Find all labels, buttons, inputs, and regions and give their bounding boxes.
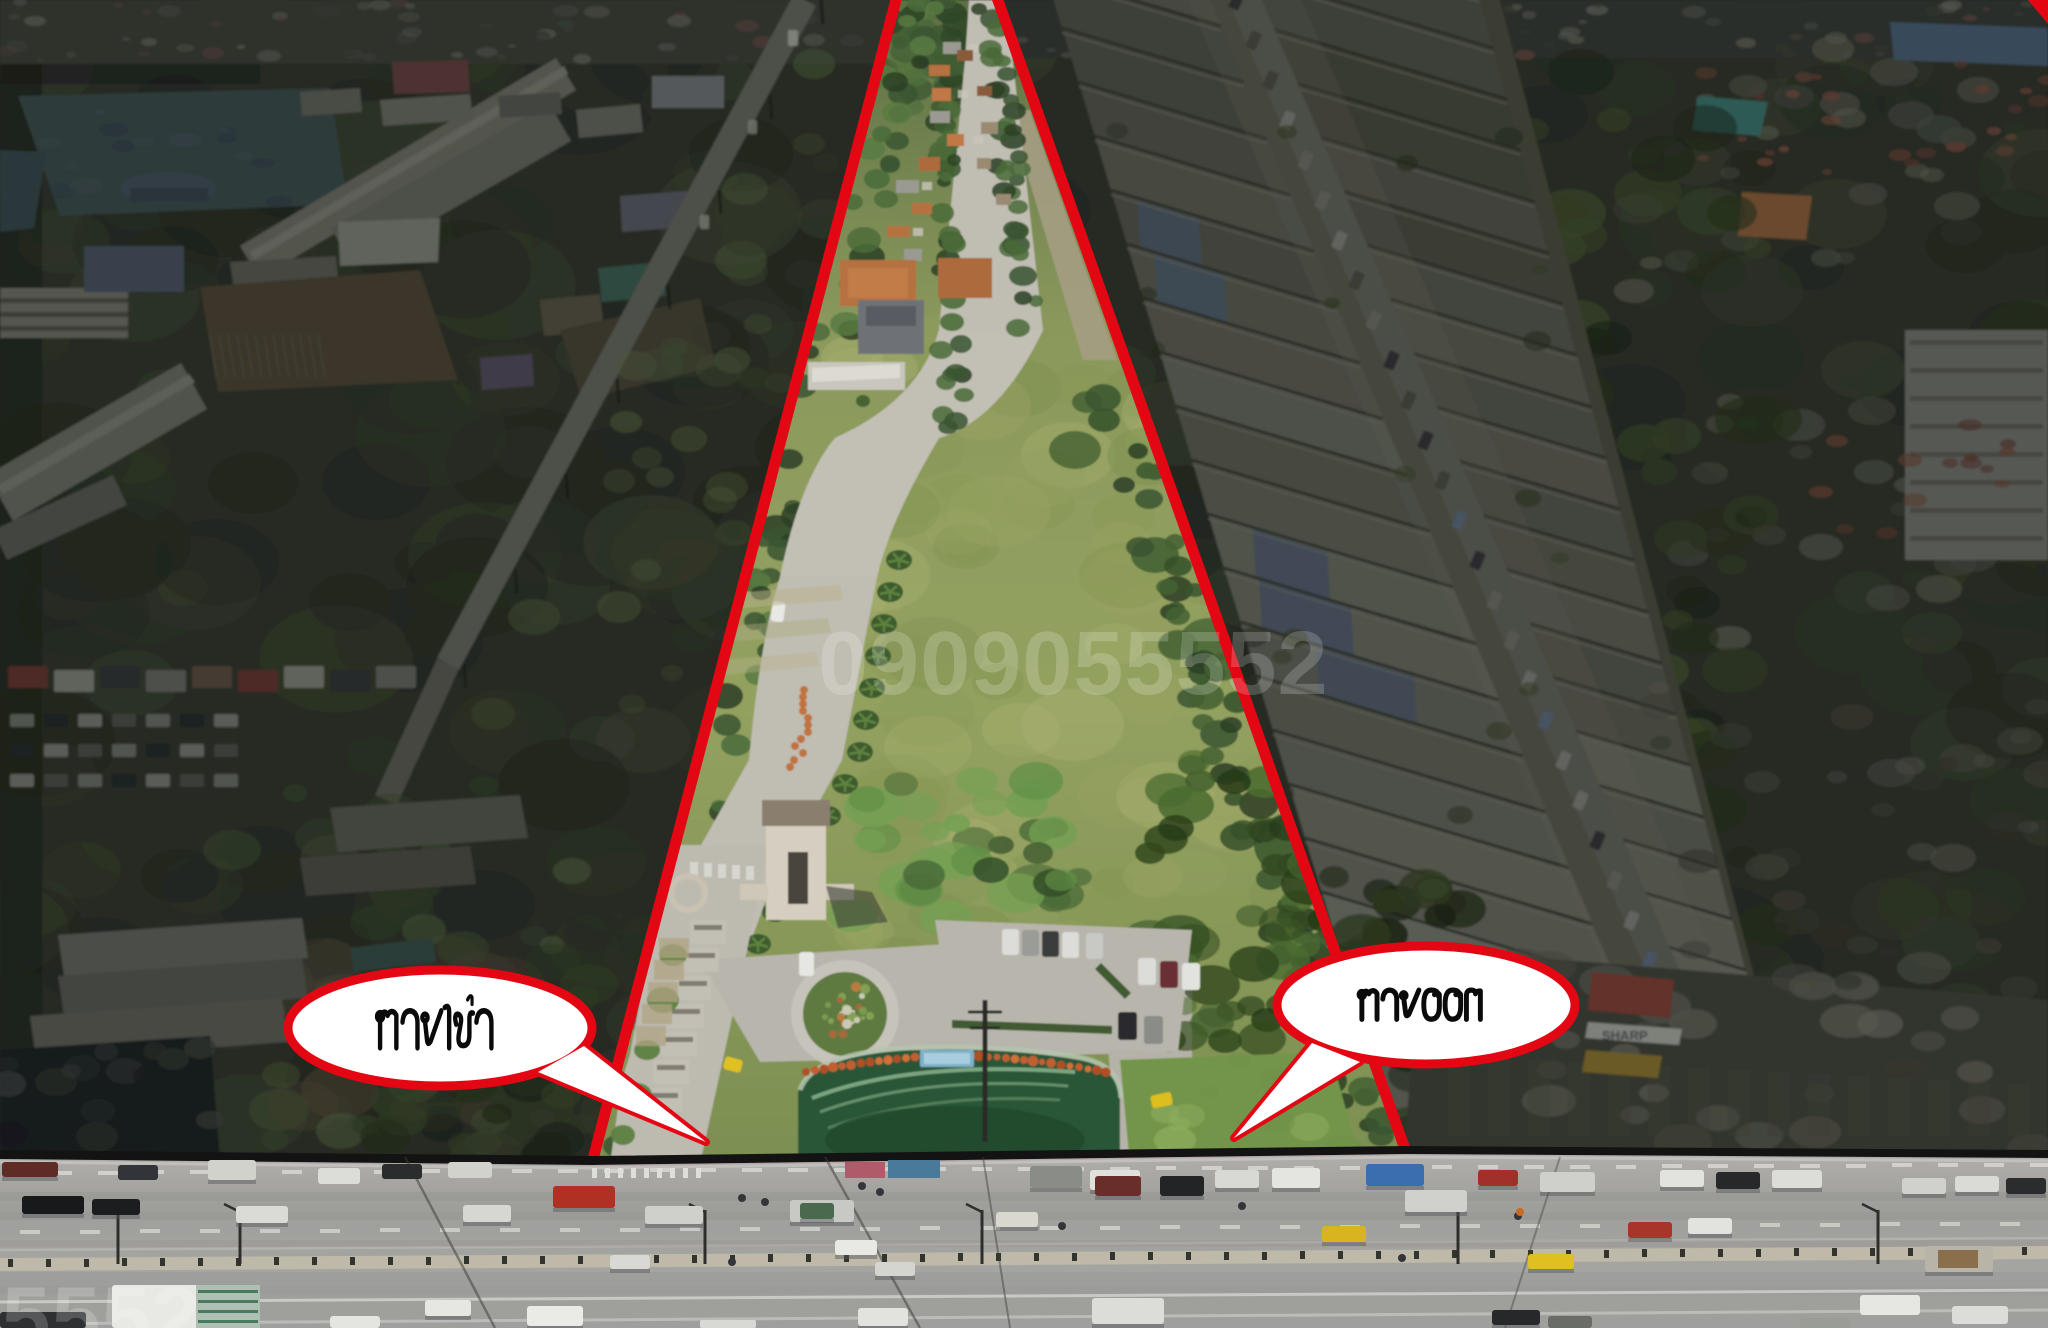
svg-text:0909055552: 0909055552 xyxy=(818,614,1329,714)
svg-text:SHARP: SHARP xyxy=(1602,1028,1648,1043)
svg-text:0909055552: 0909055552 xyxy=(0,1268,201,1328)
